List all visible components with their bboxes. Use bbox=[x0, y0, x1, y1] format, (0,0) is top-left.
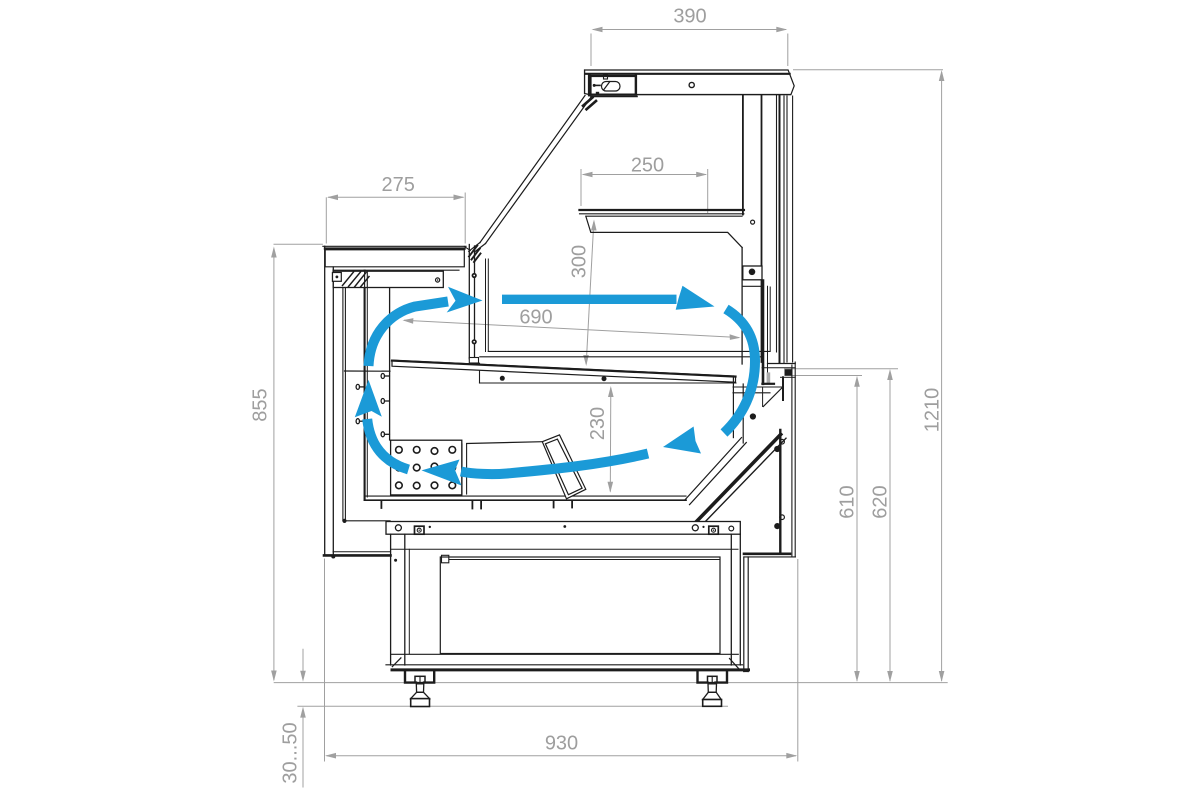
svg-text:230: 230 bbox=[587, 407, 609, 440]
svg-text:610: 610 bbox=[837, 485, 859, 518]
svg-text:690: 690 bbox=[519, 307, 552, 329]
svg-text:250: 250 bbox=[631, 155, 664, 177]
svg-text:390: 390 bbox=[673, 6, 706, 28]
svg-text:855: 855 bbox=[250, 388, 272, 421]
svg-text:620: 620 bbox=[870, 485, 892, 518]
svg-text:930: 930 bbox=[545, 733, 578, 755]
svg-text:300: 300 bbox=[569, 245, 591, 278]
svg-text:30...50: 30...50 bbox=[280, 722, 302, 783]
svg-text:1210: 1210 bbox=[922, 388, 944, 433]
svg-text:275: 275 bbox=[382, 174, 415, 196]
